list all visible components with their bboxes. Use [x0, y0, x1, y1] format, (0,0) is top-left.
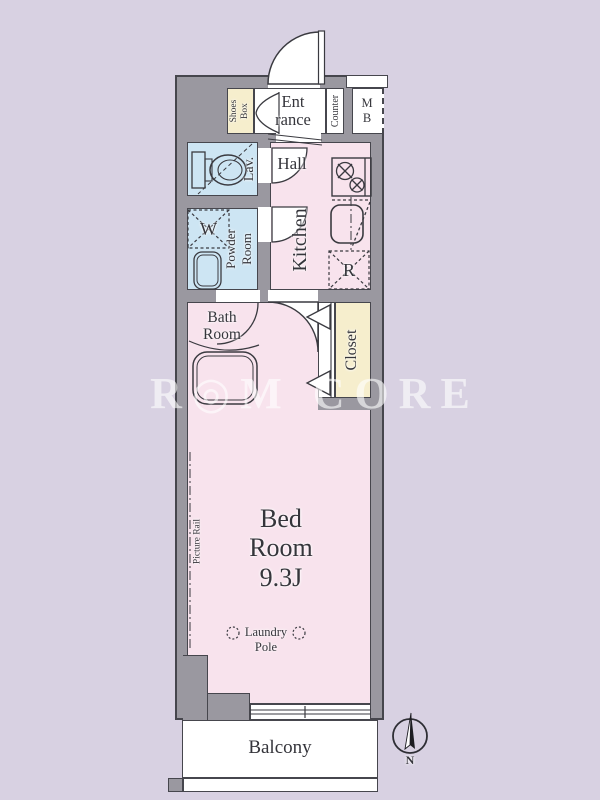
- hall-label: Hall: [266, 152, 318, 176]
- powder-door-opening: [258, 207, 271, 242]
- bed-room-label: Bed Room 9.3J: [211, 498, 351, 598]
- north-label: N: [401, 753, 419, 768]
- balcony-label: Balcony: [182, 720, 378, 776]
- shoes-box-label: Shoes Box: [226, 86, 254, 136]
- picture-rail-label: Picture Rail: [191, 496, 204, 588]
- watermark: R◎M CORE: [105, 370, 525, 420]
- pole-label: Pole: [226, 640, 306, 654]
- counter-label: Counter: [328, 87, 342, 135]
- washer-label: W: [188, 210, 229, 248]
- laundry-label: Laundry: [226, 625, 306, 640]
- pillar-step-1: [183, 655, 208, 720]
- bedroom-door-opening: [268, 290, 318, 302]
- kitchen-label: Kitchen: [287, 192, 313, 288]
- north-compass-icon: [393, 713, 427, 753]
- balcony-edge-strip: [183, 778, 378, 792]
- meter-box-top-strip: [346, 75, 388, 88]
- refrigerator-label: R: [329, 251, 369, 289]
- balcony-window: [250, 704, 371, 720]
- front-door-opening: [268, 75, 320, 88]
- lavatory-label: Lav.: [242, 144, 258, 194]
- entrance-label: Ent rance: [258, 90, 328, 132]
- pillar-step-2: [208, 693, 250, 720]
- balcony-edge-block: [168, 778, 183, 792]
- entrance-hall-opening: [276, 133, 321, 142]
- floor-plan: Shoes Box Ent rance Counter M B Lav. Hal…: [0, 0, 600, 800]
- meter-box-label: M B: [352, 90, 382, 132]
- bath-room-label: Bath Room: [189, 306, 255, 346]
- bath-door-opening: [216, 290, 260, 302]
